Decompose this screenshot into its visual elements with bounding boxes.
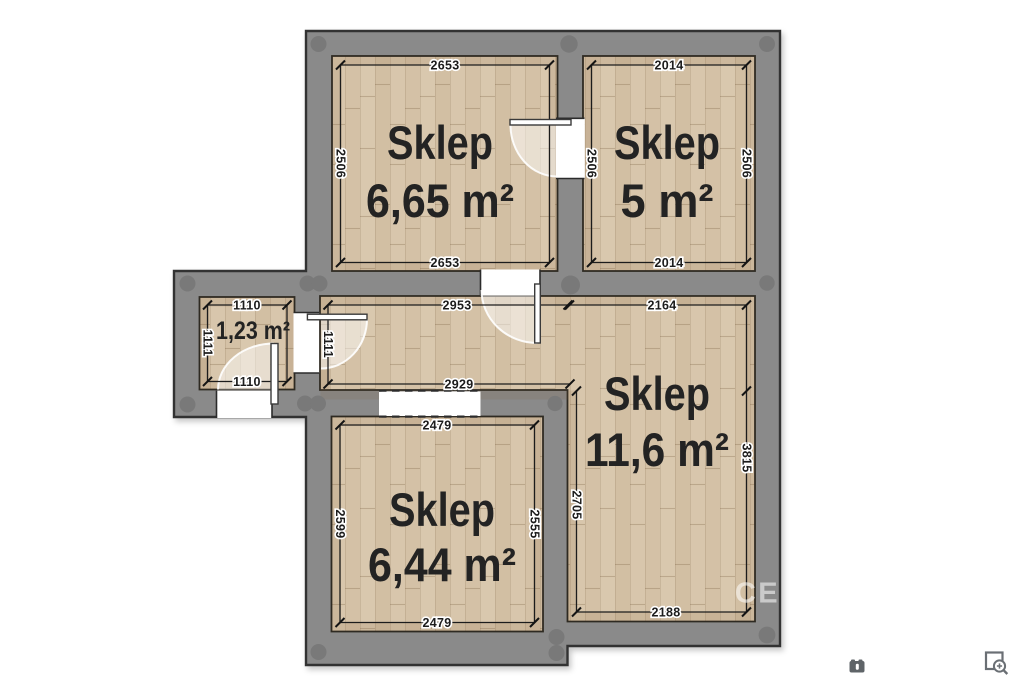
svg-text:2506: 2506 (585, 149, 599, 178)
svg-text:1,23 m²: 1,23 m² (216, 317, 290, 345)
svg-text:2705: 2705 (570, 490, 584, 519)
svg-text:Sklep: Sklep (604, 367, 710, 420)
svg-text:2479: 2479 (422, 616, 451, 630)
svg-text:1110: 1110 (233, 375, 261, 389)
svg-text:2014: 2014 (654, 59, 683, 73)
svg-text:Sklep: Sklep (614, 116, 720, 169)
svg-text:1110: 1110 (233, 299, 261, 313)
svg-text:2653: 2653 (430, 59, 459, 73)
svg-text:CE: CE (735, 578, 780, 610)
svg-text:2929: 2929 (444, 378, 473, 392)
svg-text:3815: 3815 (740, 443, 754, 472)
svg-text:6,65 m²: 6,65 m² (366, 174, 514, 227)
svg-text:2599: 2599 (333, 509, 347, 538)
svg-text:2164: 2164 (647, 299, 676, 313)
svg-text:2555: 2555 (528, 509, 542, 538)
svg-text:2653: 2653 (430, 256, 459, 270)
svg-text:2506: 2506 (740, 149, 754, 178)
svg-text:5 m²: 5 m² (621, 174, 714, 227)
svg-text:2506: 2506 (334, 149, 348, 178)
svg-text:11,6 m²: 11,6 m² (585, 423, 729, 476)
svg-text:2188: 2188 (651, 606, 680, 620)
svg-text:1111: 1111 (201, 330, 215, 357)
svg-text:Sklep: Sklep (387, 116, 493, 169)
svg-text:6,44 m²: 6,44 m² (368, 538, 516, 591)
svg-text:2014: 2014 (654, 256, 683, 270)
svg-text:2953: 2953 (442, 299, 471, 313)
svg-text:2479: 2479 (422, 419, 451, 433)
svg-text:1111: 1111 (321, 331, 335, 358)
svg-text:Sklep: Sklep (389, 483, 495, 536)
